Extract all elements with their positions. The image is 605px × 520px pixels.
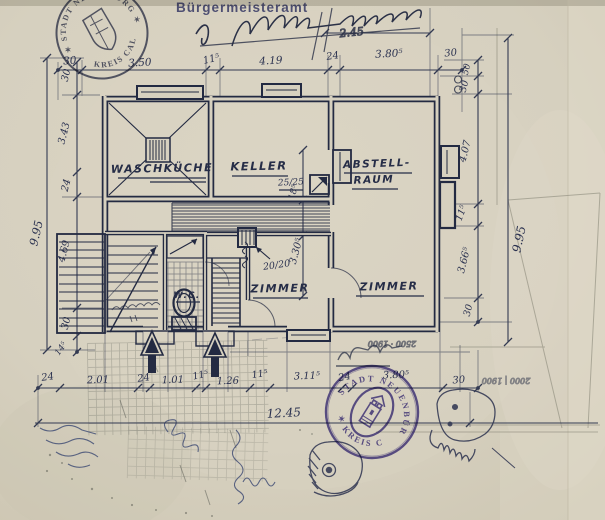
dim-bottom-5: 1.26 [217, 376, 240, 388]
dim-top-5: 3.80⁵ [375, 47, 404, 60]
dim-bottom-6: 11⁵ [251, 368, 268, 381]
dim-bottom-3: 1.01 [162, 375, 185, 387]
dim-top-4: 24 [325, 50, 340, 63]
dim-bottom-10: 30 [452, 375, 466, 387]
room-label-abstell-1: ABSTELL- [342, 157, 411, 171]
dim-top-3: 4.19 [258, 54, 283, 67]
window-bay-top-left [137, 86, 203, 99]
room-label-wc: W.C. [173, 291, 200, 301]
window-bay-bottom [287, 330, 330, 341]
room-label-abstell-2: RAUM [353, 173, 394, 186]
room-label-zimmer-right: ZIMMER [358, 279, 418, 293]
flipped-note-right: 2000 | 1900 [482, 376, 532, 385]
room-label-waschkueche: WASCHKÜCHE [111, 160, 214, 176]
window-bay-right [441, 146, 459, 178]
handwritten-dimension: 2.45 [338, 25, 365, 41]
window-bay-top-right [262, 84, 301, 97]
flipped-note-mid: 2500 · 1900 [368, 339, 417, 348]
room-label-keller: KELLER [230, 159, 287, 174]
dim-bottom-0: 24 [40, 371, 55, 384]
chimney-jog [440, 182, 455, 228]
office-stamp-text: Bürgermeisteramt [176, 0, 308, 15]
floor-plan-drawing: 30 3.50 11⁵ 4.19 24 3.80⁵ 30 30 3.43 24 … [0, 0, 605, 520]
dim-top-6: 30 [444, 47, 458, 59]
dim-bottom-overall: 12.45 [266, 405, 301, 421]
note-25-25: 25/25 [277, 177, 305, 188]
dim-bottom-2: 24 [136, 372, 151, 385]
dim-bottom-1: 2.01 [86, 375, 110, 387]
room-label-zimmer-left: ZIMMER [249, 281, 309, 295]
scanned-floor-plan: 30 3.50 11⁵ 4.19 24 3.80⁵ 30 30 3.43 24 … [0, 0, 605, 520]
dim-bottom-7: 3.11⁵ [294, 371, 321, 383]
